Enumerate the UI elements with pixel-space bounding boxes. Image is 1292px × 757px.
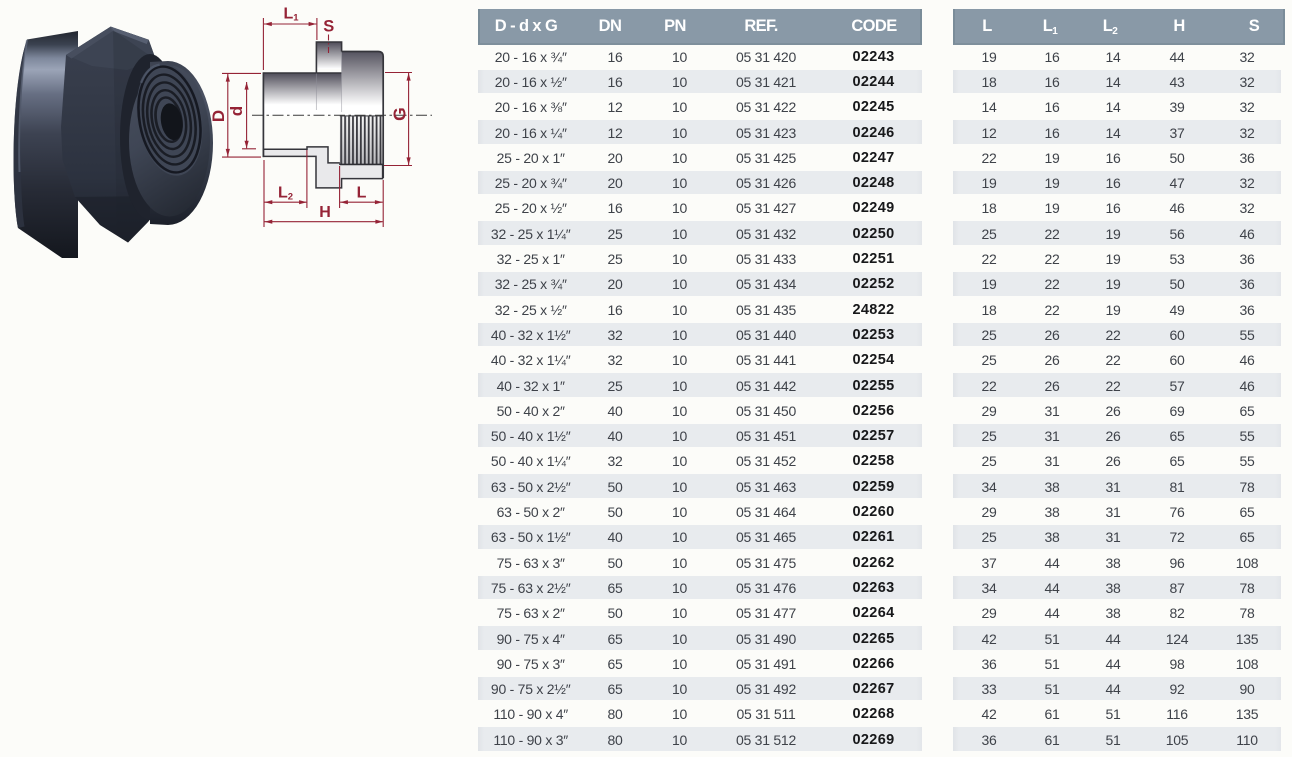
- svg-text:L2: L2: [278, 185, 293, 203]
- svg-text:G: G: [390, 107, 410, 121]
- svg-text:L1: L1: [283, 6, 299, 24]
- svg-text:H: H: [319, 204, 331, 221]
- svg-text:D: D: [209, 110, 228, 122]
- svg-text:S: S: [323, 18, 334, 36]
- svg-text:d: d: [227, 106, 246, 116]
- svg-text:L: L: [357, 185, 367, 202]
